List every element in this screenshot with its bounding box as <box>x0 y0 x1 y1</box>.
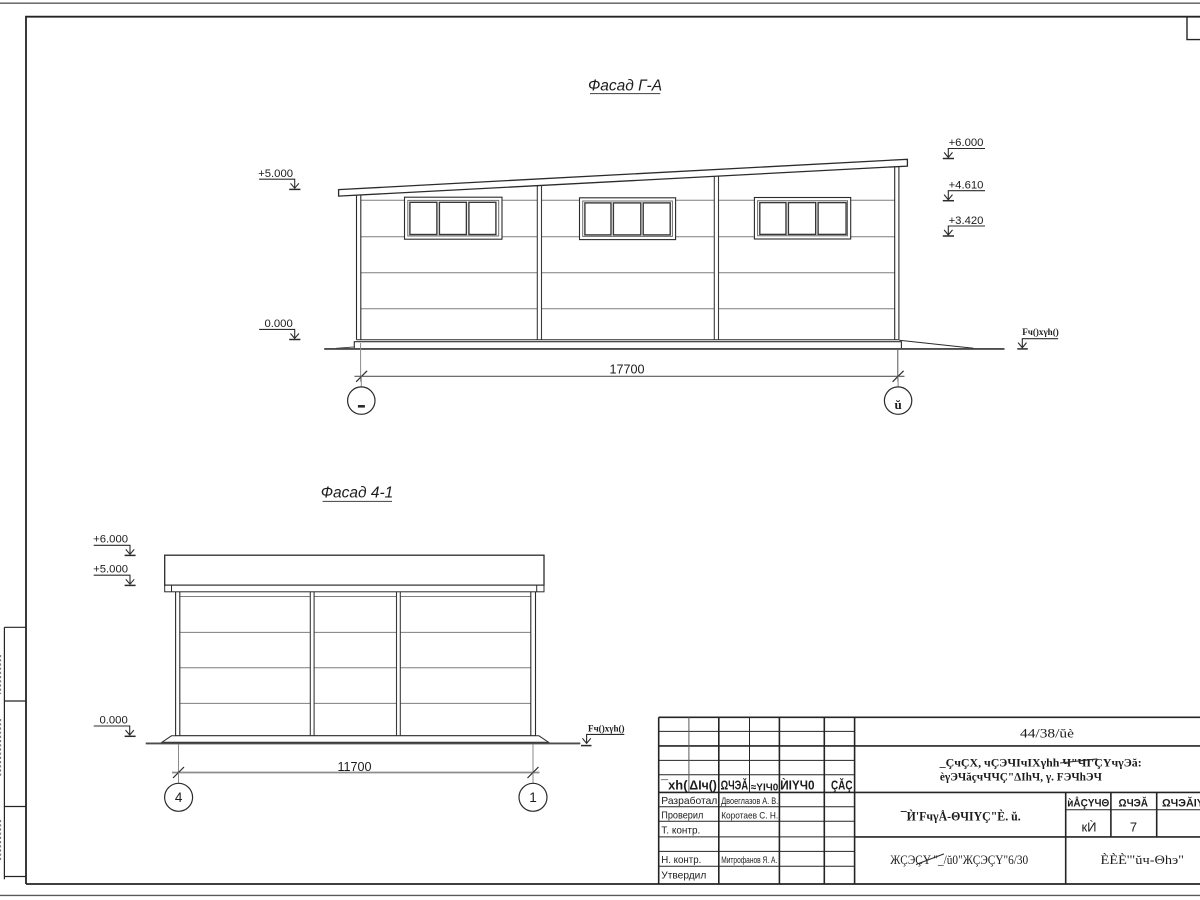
svg-text:0.000: 0.000 <box>264 318 292 330</box>
svg-text:0.000: 0.000 <box>99 715 127 727</box>
svg-text:11700: 11700 <box>337 760 371 774</box>
svg-text:ѝÅÇΥЧΘ: ѝÅÇΥЧΘ <box>1067 796 1109 809</box>
svg-text:Утвердил: Утвердил <box>661 870 706 881</box>
svg-text:Н. контр.: Н. контр. <box>661 855 701 866</box>
svg-text:Фасад 4-1: Фасад 4-1 <box>321 485 394 502</box>
svg-text:¯хh(: ¯хh( <box>660 779 688 793</box>
svg-text:≈YΙЧ0: ≈YΙЧ0 <box>751 782 779 794</box>
svg-text:ΩЧЭĂΙY: ΩЧЭĂΙY <box>1162 796 1200 809</box>
svg-text:17700: 17700 <box>609 362 644 376</box>
svg-text:4: 4 <box>175 790 183 805</box>
svg-text:ΔΙч(): ΔΙч() <box>689 779 717 793</box>
svg-text:Т. контр.: Т. контр. <box>661 826 700 837</box>
svg-text:+5.000: +5.000 <box>93 564 128 576</box>
svg-text:ŭ: ŭ <box>894 397 901 412</box>
svg-text:ÇĂÇ: ÇĂÇ <box>831 778 853 793</box>
svg-text:+6.000: +6.000 <box>93 534 128 546</box>
svg-text:кЍ: кЍ <box>1081 820 1096 835</box>
svg-text:ЍΙΥЧ0: ЍΙΥЧ0 <box>780 778 814 793</box>
svg-text:_ÇчÇХ, чÇЭЧΙчΙХγhh Ч"ЧΙ'ÇΥчγЭă: _ÇчÇХ, чÇЭЧΙчΙХγhh Ч"ЧΙ'ÇΥчγЭă: <box>939 756 1142 770</box>
svg-text:+4.610: +4.610 <box>949 179 984 191</box>
svg-text:Коротаев С. Н.: Коротаев С. Н. <box>721 810 778 820</box>
svg-text:ЖÇЭÇΥ "_/ŭ0"ЖÇЭÇΥ"6/30: ЖÇЭÇΥ "_/ŭ0"ЖÇЭÇΥ"6/30 <box>890 853 1028 867</box>
svg-text:ÈÈÈ'"ŭч-Θhэ": ÈÈÈ'"ŭч-Θhэ" <box>1101 853 1185 867</box>
svg-text:Фасад Г-А: Фасад Г-А <box>588 78 662 95</box>
svg-text:1: 1 <box>529 790 537 805</box>
svg-text:44/38/ŭè: 44/38/ŭè <box>1020 726 1075 740</box>
svg-text:Проверил: Проверил <box>661 811 703 822</box>
svg-text:+5.000: +5.000 <box>258 168 293 180</box>
svg-text:+6.000: +6.000 <box>949 137 984 149</box>
svg-text:7: 7 <box>1130 820 1137 835</box>
svg-text:Митрофанов Я. А.: Митрофанов Я. А. <box>721 855 777 865</box>
svg-text:ΩЧЭĂ: ΩЧЭĂ <box>1119 796 1149 809</box>
svg-text:Разработал: Разработал <box>661 795 717 807</box>
svg-text:Двоеглазов А. В.: Двоеглазов А. В. <box>721 796 778 806</box>
svg-text:¯Ѝ'FчγÅ-ΘЧΙΥÇ"È. ŭ.: ¯Ѝ'FчγÅ-ΘЧΙΥÇ"È. ŭ. <box>900 809 1021 823</box>
svg-text:Fч()хγh(): Fч()хγh() <box>1022 327 1059 338</box>
svg-text:ΩЧЭĂ: ΩЧЭĂ <box>721 778 749 793</box>
svg-text:+3.420: +3.420 <box>949 215 984 227</box>
svg-text:Fч()хγh(): Fч()хγh() <box>588 723 625 734</box>
svg-text:èγЭЧăçчЧЧÇ"ΔΙhЧ, γ. FЭЧhЭЧ: èγЭЧăçчЧЧÇ"ΔΙhЧ, γ. FЭЧhЭЧ <box>940 769 1102 783</box>
